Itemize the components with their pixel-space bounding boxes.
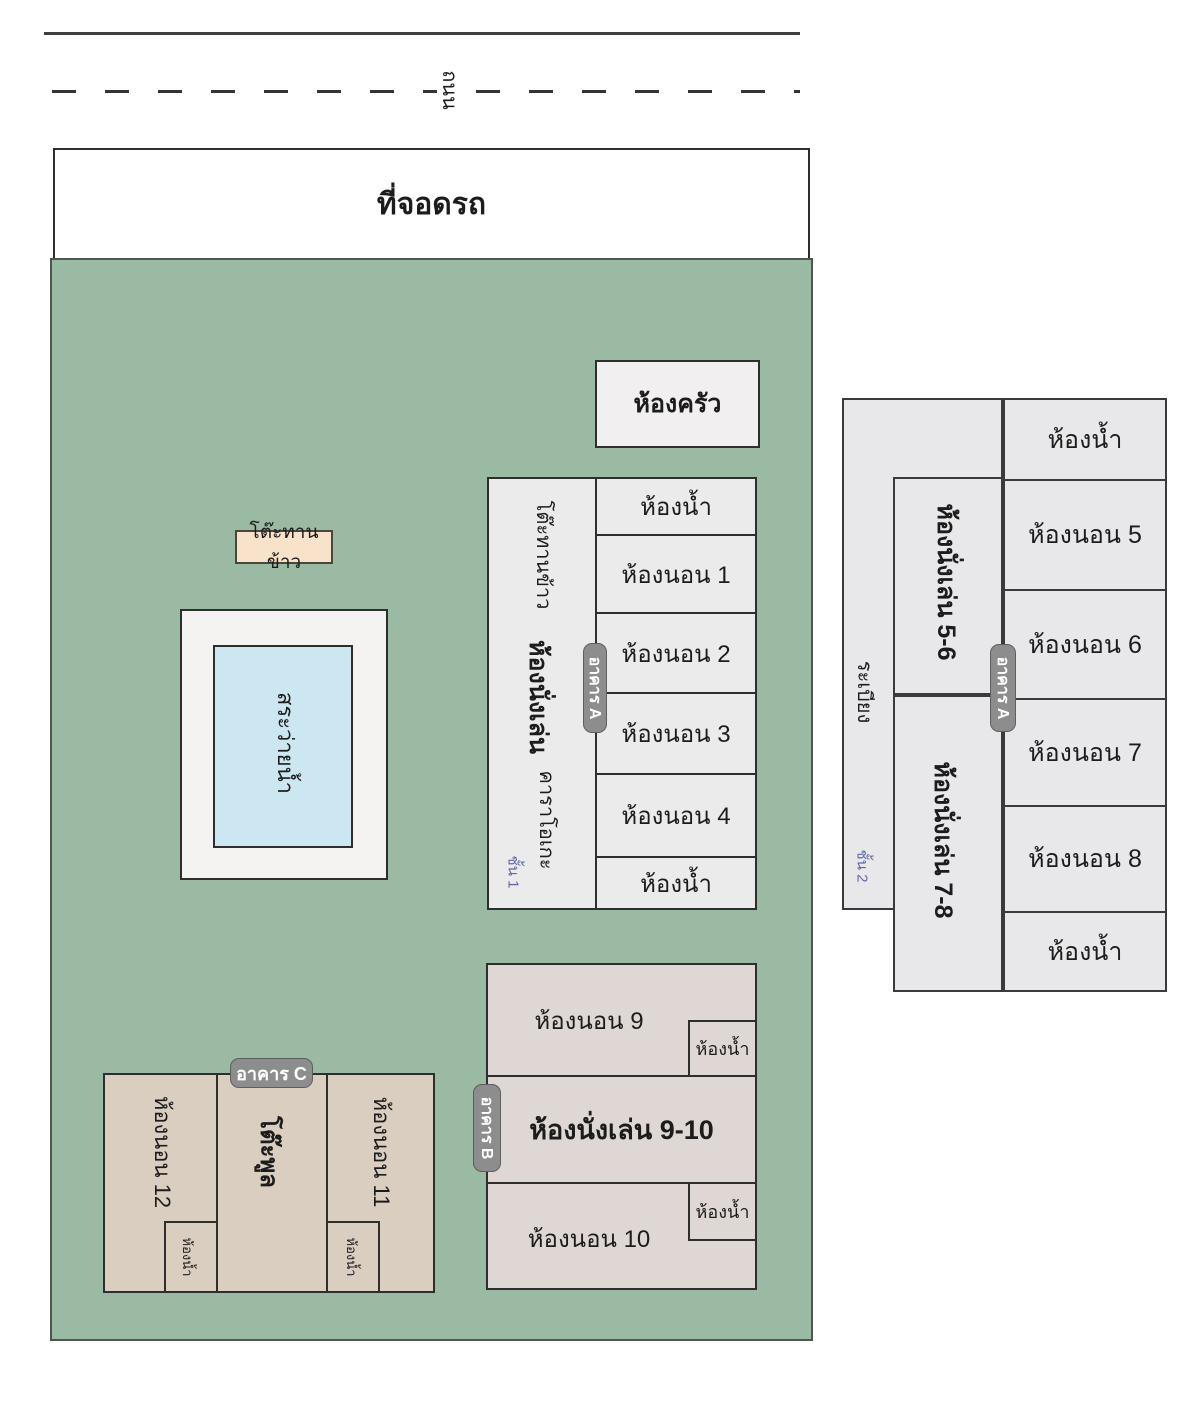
building-c-badge: อาคาร C xyxy=(230,1058,313,1088)
parking-label: ที่จอดรถ xyxy=(377,181,486,228)
road-edge-line xyxy=(44,32,800,35)
room-bathroom: ห้องน้ำ xyxy=(1005,400,1165,479)
living-5-6-label: ห้องนั่งเล่น 5-6 xyxy=(931,503,959,660)
room-bedroom-3: ห้องนอน 3 xyxy=(597,692,755,773)
swimming-pool-label: สระว่ายน้ำ xyxy=(273,692,297,794)
room-bedroom-4: ห้องนอน 4 xyxy=(597,773,755,856)
dining-table-indoor-label: โต๊ะทานข้าว xyxy=(532,501,554,610)
floor-1-label: ชั้น 1 xyxy=(504,856,521,889)
bathroom-11-label: ห้องน้ำ xyxy=(344,1238,358,1277)
kitchen-label: ห้องครัว xyxy=(634,384,722,424)
room-bathroom: ห้องน้ำ xyxy=(597,479,755,534)
room-bedroom-1: ห้องนอน 1 xyxy=(597,534,755,612)
building-a-badge: อาคาร A xyxy=(583,643,607,733)
room-bedroom-9: ห้องนอน 9 ห้องน้ำ xyxy=(488,965,755,1075)
building-a-floor2-badge: อาคาร A xyxy=(990,644,1016,732)
room-bathroom: ห้องน้ำ xyxy=(597,856,755,908)
dining-table-outdoor-label: โต๊ะทานข้าว xyxy=(235,530,333,564)
building-b: ห้องนอน 9 ห้องน้ำ ห้องนั่งเล่น 9-10 ห้อง… xyxy=(486,963,757,1290)
building-b-badge: อาคาร B xyxy=(473,1084,501,1172)
living-room-label: ห้องนั่งเล่น xyxy=(523,640,551,754)
room-bedroom-2: ห้องนอน 2 xyxy=(597,612,755,692)
road-center-dashed-line xyxy=(52,90,800,93)
room-bedroom-8: ห้องนอน 8 xyxy=(1005,805,1165,911)
karaoke-label: คาราโอเกะ xyxy=(535,770,557,869)
room-living-9-10: ห้องนั่งเล่น 9-10 xyxy=(488,1075,755,1182)
pool-table-label: โต๊ะพูล xyxy=(255,1116,281,1188)
road-label: ถนน xyxy=(437,64,461,115)
room-bedroom-5: ห้องนอน 5 xyxy=(1005,479,1165,589)
bedroom-9-label: ห้องนอน 9 xyxy=(488,965,690,1075)
floor-2-label: ชั้น 2 xyxy=(853,850,870,883)
bedroom-10-label: ห้องนอน 10 xyxy=(488,1184,690,1292)
bedroom-12-label: ห้องนอน 12 xyxy=(150,1096,174,1208)
room-bathroom: ห้องน้ำ xyxy=(1005,911,1165,990)
room-bedroom-10: ห้องน้ำ ห้องนอน 10 xyxy=(488,1182,755,1292)
room-bedroom-6: ห้องนอน 6 xyxy=(1005,589,1165,698)
room-bathroom: ห้องน้ำ xyxy=(688,1020,757,1077)
room-bedroom-7: ห้องนอน 7 xyxy=(1005,698,1165,805)
room-bathroom: ห้องน้ำ xyxy=(688,1182,757,1241)
balcony-label: ระเบียง xyxy=(853,661,875,724)
building-a-floor1-rooms: ห้องน้ำ ห้องนอน 1 ห้องนอน 2 ห้องนอน 3 ห้… xyxy=(597,479,755,908)
site-plan: ถนน ที่จอดรถ ห้องครัว ห้องน้ำ ห้องนอน 1 … xyxy=(0,0,1200,1401)
living-7-8-label: ห้องนั่งเล่น 7-8 xyxy=(928,761,956,918)
kitchen-room: ห้องครัว xyxy=(595,360,760,448)
building-a-floor2-rooms: ห้องน้ำ ห้องนอน 5 ห้องนอน 6 ห้องนอน 7 ห้… xyxy=(1003,398,1167,992)
bathroom-12-label: ห้องน้ำ xyxy=(180,1238,194,1277)
bedroom-11-label: ห้องนอน 11 xyxy=(369,1097,393,1208)
parking-area: ที่จอดรถ xyxy=(53,148,810,260)
